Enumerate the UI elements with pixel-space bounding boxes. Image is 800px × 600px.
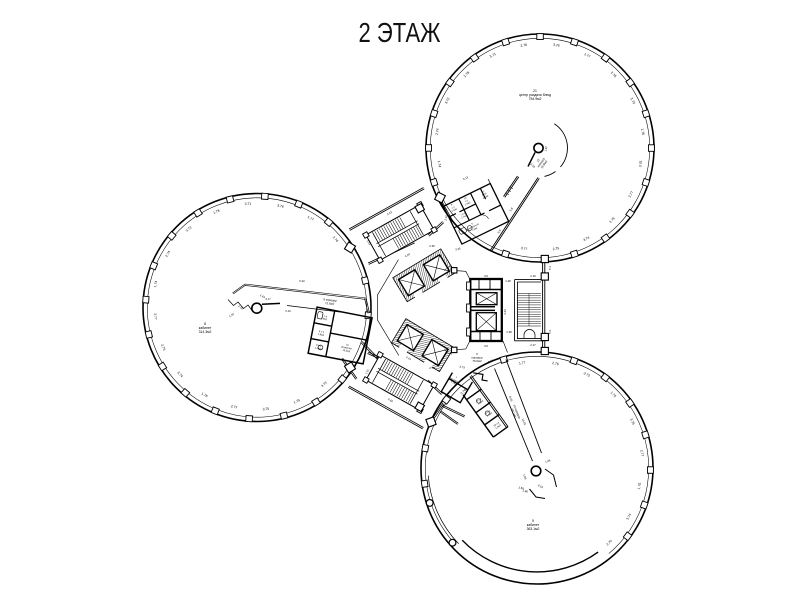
svg-text:2.19: 2.19 (530, 274, 536, 278)
svg-text:3.77: 3.77 (153, 313, 158, 320)
svg-text:2 ЭТАЖ: 2 ЭТАЖ (359, 17, 441, 48)
svg-text:1.28: 1.28 (505, 279, 511, 283)
svg-text:6.30: 6.30 (285, 309, 291, 313)
svg-text:2.73: 2.73 (429, 366, 435, 370)
svg-text:5.1: 5.1 (548, 266, 552, 270)
svg-text:76.6м2: 76.6м2 (472, 359, 482, 363)
svg-text:3.43: 3.43 (503, 309, 507, 315)
svg-text:4.17: 4.17 (265, 297, 271, 301)
svg-text:363.1м2: 363.1м2 (527, 527, 540, 531)
svg-text:3.0: 3.0 (484, 274, 488, 278)
svg-text:754.9м2: 754.9м2 (529, 97, 542, 101)
svg-text:1.38: 1.38 (506, 330, 512, 334)
svg-text:5.90: 5.90 (299, 279, 305, 283)
svg-text:3.75: 3.75 (262, 407, 269, 412)
svg-text:3.0: 3.0 (484, 344, 488, 348)
svg-text:5.3: 5.3 (548, 330, 552, 334)
svg-text:2.35: 2.35 (429, 244, 435, 248)
svg-text:3.71: 3.71 (244, 202, 251, 207)
svg-text:314.3м2: 314.3м2 (199, 330, 212, 334)
svg-text:2.17: 2.17 (530, 343, 536, 347)
